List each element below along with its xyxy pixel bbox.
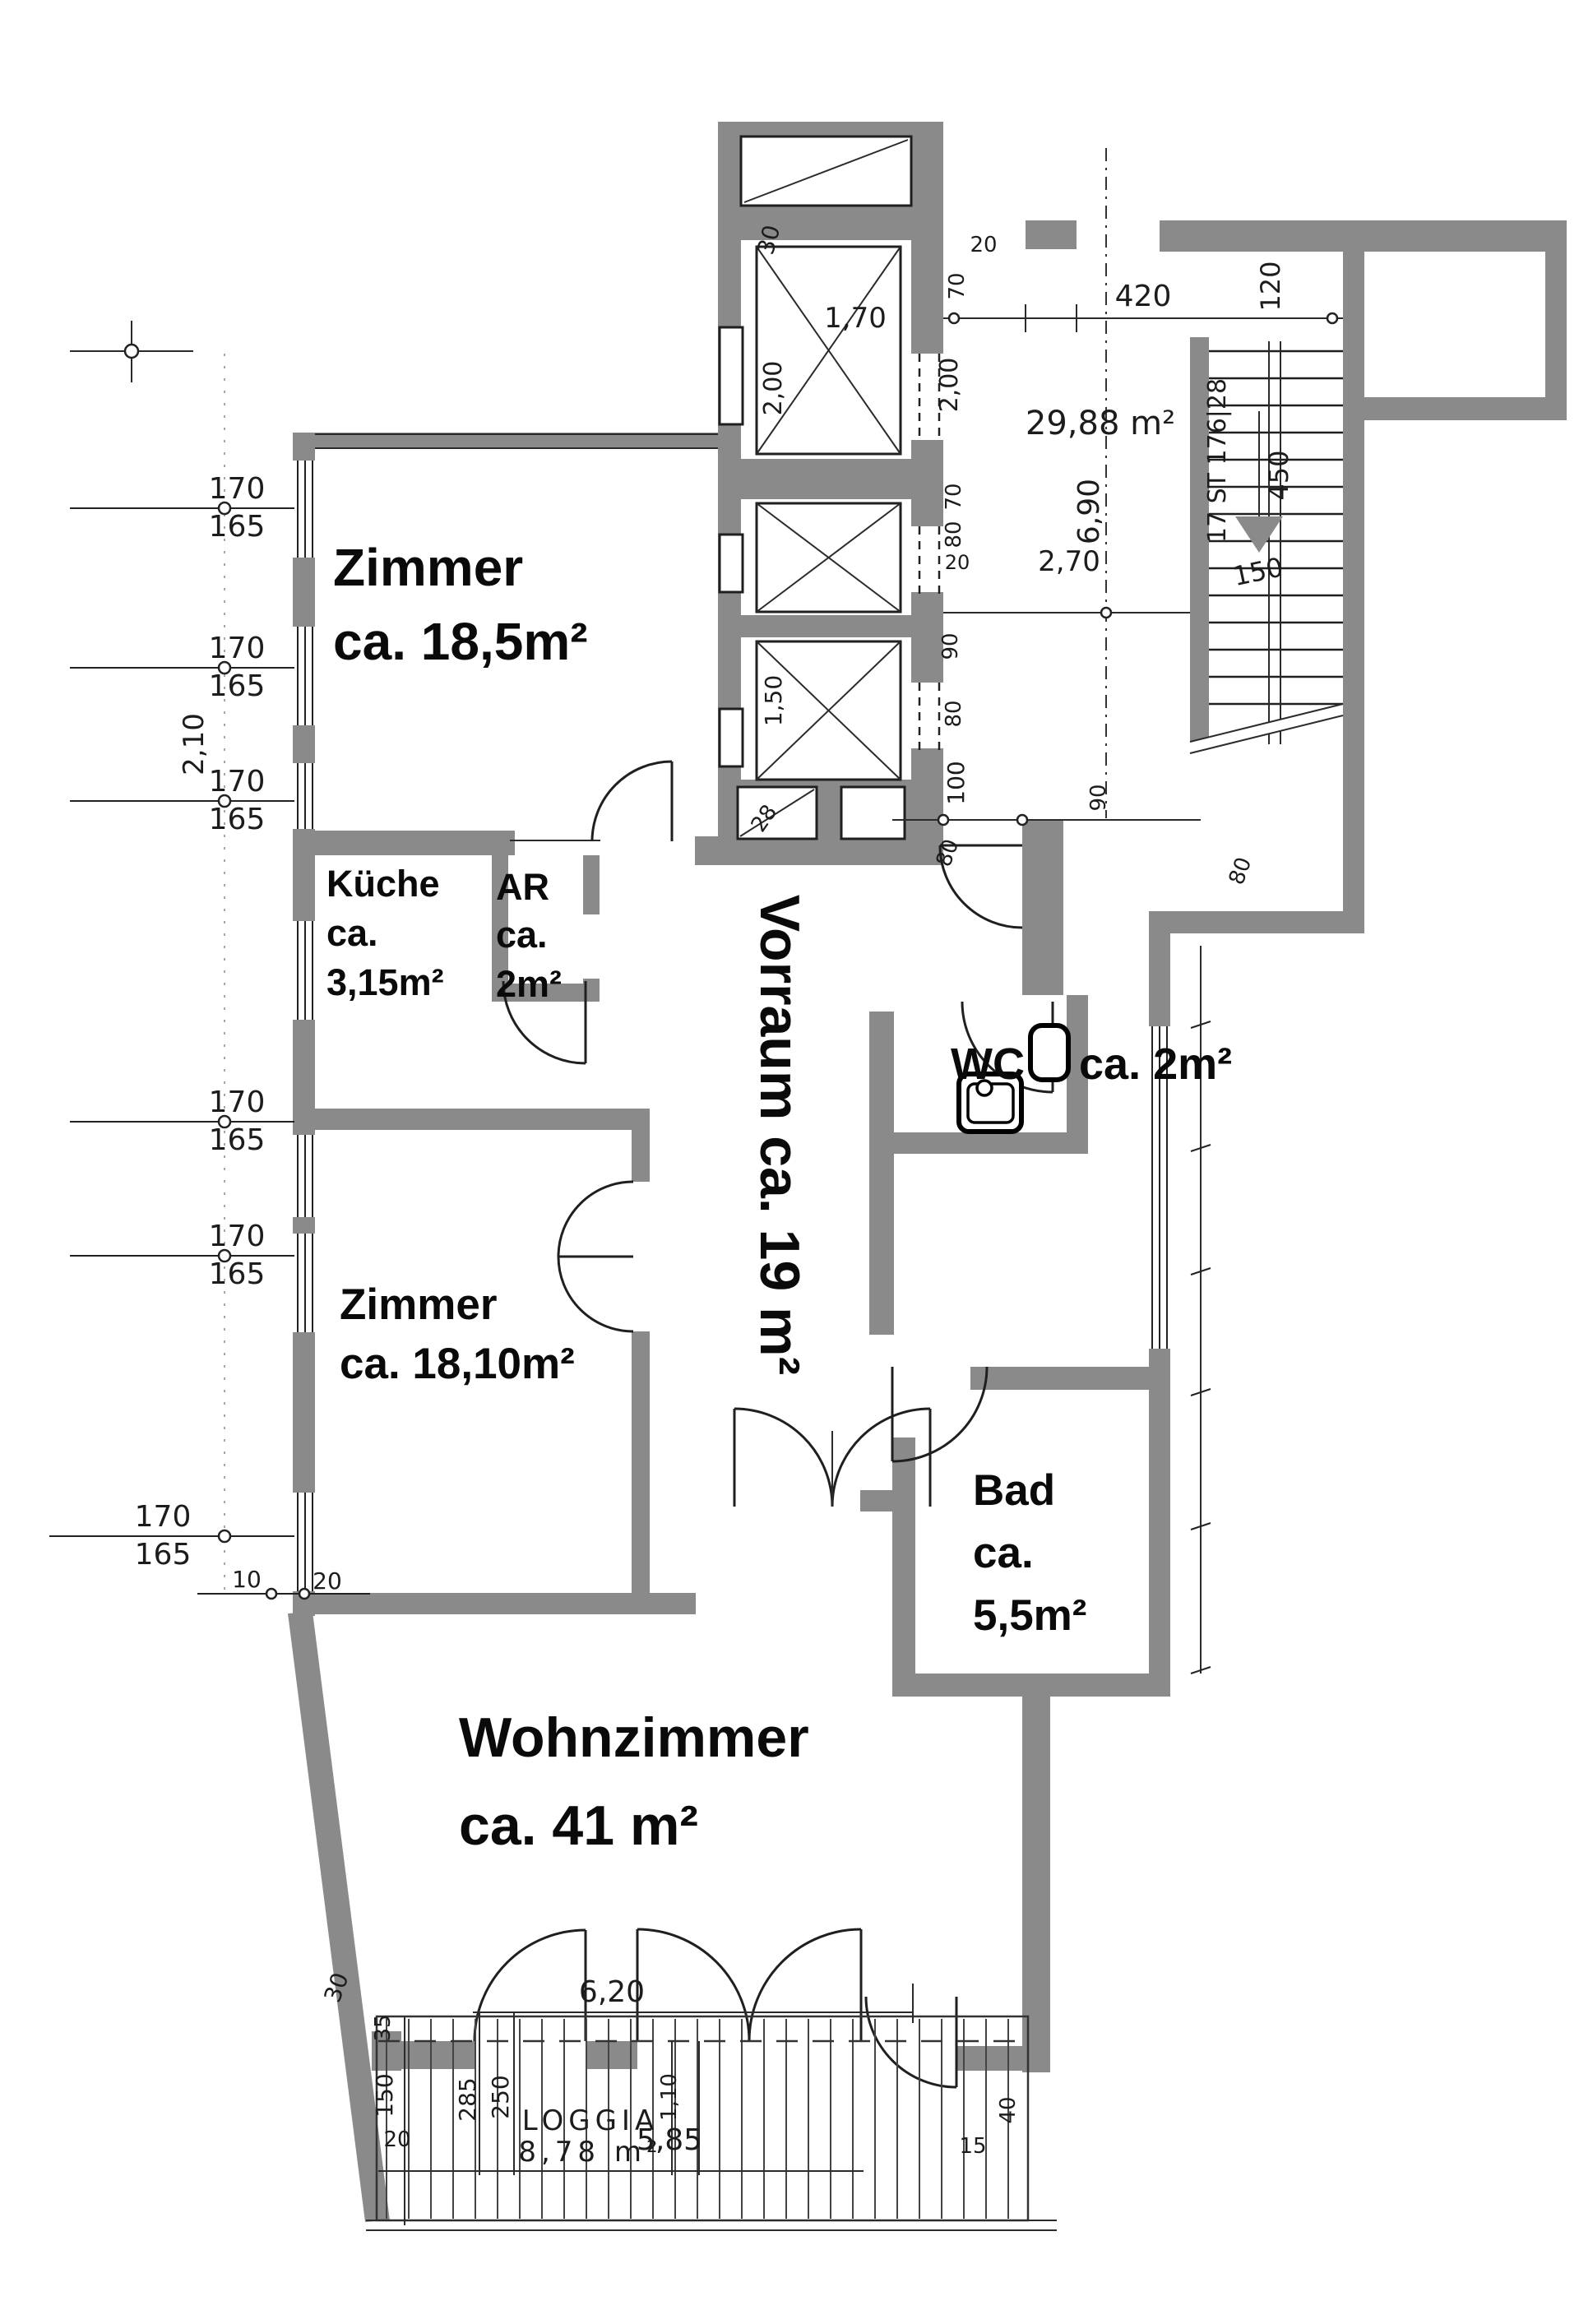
dim-label-6: 165 <box>209 803 266 836</box>
dimension-lines-layer <box>49 148 1343 2225</box>
room-label-bad-1: ca. <box>973 1529 1034 1577</box>
dim-label-24: 6,90 <box>1072 479 1106 544</box>
window-kueche <box>298 921 313 1020</box>
dim-label-14: 20 <box>313 1567 342 1595</box>
window-zimmer1-b <box>298 627 313 725</box>
dim-label-20: 2,00 <box>935 358 964 413</box>
dim-label-16: 2,00 <box>759 361 788 416</box>
room-label-wc-0: WC <box>951 1039 1025 1089</box>
dim-label-32: 1,50 <box>760 675 787 726</box>
room-label-wohnzimmer-0: Wohnzimmer <box>459 1706 809 1769</box>
dim-label-43: 20 <box>383 2127 410 2152</box>
window-zimmer2-a <box>298 1135 313 1217</box>
room-label-abstellraum-2: 2m² <box>496 963 562 1005</box>
dim-label-48: 1,10 <box>657 2073 682 2121</box>
dim-label-25: 2,70 <box>1038 545 1100 578</box>
dim-label-35: 450 <box>1263 450 1294 500</box>
dim-label-44: 285 <box>454 2077 481 2121</box>
dim-label-41: 35 <box>371 2014 396 2041</box>
room-label-bad-2: 5,5m² <box>973 1591 1086 1640</box>
room-label-wc-area-0: ca. 2m² <box>1079 1039 1232 1089</box>
window-zimmer1-c <box>298 763 313 829</box>
dim-label-26: 70 <box>942 483 966 510</box>
room-label-kueche-0: Küche <box>326 863 440 905</box>
room-label-wohnzimmer-1: ca. 41 m² <box>459 1794 698 1857</box>
dim-label-9: 170 <box>209 1220 266 1253</box>
dim-label-39: 90 <box>1086 784 1111 811</box>
dim-label-10: 165 <box>209 1257 266 1291</box>
dim-label-27: 80 <box>942 521 966 548</box>
door-zimmer2-double <box>558 1182 633 1331</box>
dim-label-21: 120 <box>1255 261 1286 311</box>
room-label-zimmer-1-0: Zimmer <box>333 538 523 597</box>
walls-layer <box>288 122 1567 2222</box>
dim-label-4: 2,10 <box>178 713 211 775</box>
dim-label-22: 420 <box>1115 280 1172 313</box>
floor-plan-canvas: Zimmerca. 18,5m²Kücheca.3,15m²ARca.2m²Vo… <box>0 0 1579 2324</box>
dim-label-50: 15 <box>959 2134 986 2159</box>
room-label-zimmer-2-0: Zimmer <box>340 1280 497 1329</box>
room-label-zimmer-2-1: ca. 18,10m² <box>340 1340 575 1388</box>
dim-label-45: 250 <box>487 2075 514 2118</box>
room-label-bad-0: Bad <box>973 1466 1055 1515</box>
dim-label-29: 90 <box>938 632 963 660</box>
dim-label-3: 165 <box>209 669 266 703</box>
dim-label-19: 70 <box>945 272 970 299</box>
room-label-kueche-1: ca. <box>326 912 378 954</box>
room-label-abstellraum-0: AR <box>496 866 549 908</box>
dim-label-31: 100 <box>942 761 970 804</box>
dim-label-18: 20 <box>970 233 997 257</box>
toilet-icon <box>1030 1025 1068 1080</box>
dim-label-46: 6,20 <box>579 1975 645 2009</box>
dim-label-0: 170 <box>209 472 266 506</box>
dim-label-1: 165 <box>209 510 266 544</box>
dim-label-49: 40 <box>996 2096 1021 2123</box>
dim-label-8: 165 <box>209 1123 266 1157</box>
dim-label-42: 150 <box>371 2073 398 2117</box>
door-zimmer1 <box>592 762 672 841</box>
door-loggia-3 <box>866 1997 956 2087</box>
dim-label-23: 29,88 m² <box>1026 405 1175 442</box>
stair-direction-arrow-icon <box>1235 516 1283 553</box>
dim-label-38: 80 <box>1225 854 1257 888</box>
dim-label-11: 170 <box>135 1500 192 1534</box>
dim-label-2: 170 <box>209 632 266 665</box>
dimension-labels-layer: 1701651701652,10170165170165170165170165… <box>135 222 1294 2159</box>
dim-label-47: 5,85 <box>637 2123 702 2157</box>
dim-label-12: 165 <box>135 1538 192 1572</box>
window-wohnzimmer <box>298 1493 313 1591</box>
dim-label-28: 20 <box>945 551 970 574</box>
dim-label-34: 17 ST 176|28 <box>1203 378 1232 543</box>
room-label-abstellraum-1: ca. <box>496 914 548 956</box>
room-label-kueche-2: 3,15m² <box>326 961 444 1003</box>
dim-label-30: 80 <box>942 700 966 727</box>
door-loggia-1 <box>475 1930 586 2041</box>
dim-label-36: 150 <box>1230 551 1286 592</box>
door-loggia-2-double <box>637 1929 861 2041</box>
dim-label-7: 170 <box>209 1086 266 1119</box>
dim-label-5: 170 <box>209 765 266 799</box>
window-zimmer2-b <box>298 1234 313 1332</box>
room-label-vorraum-0: Vorraum ca. 19 m² <box>748 895 811 1376</box>
dim-label-17: 1,70 <box>824 302 887 335</box>
room-label-zimmer-1-1: ca. 18,5m² <box>333 612 588 671</box>
dim-label-13: 10 <box>232 1566 262 1593</box>
window-zimmer1-a <box>298 461 313 558</box>
floor-plan-page: Zimmerca. 18,5m²Kücheca.3,15m²ARca.2m²Vo… <box>0 0 1579 2324</box>
